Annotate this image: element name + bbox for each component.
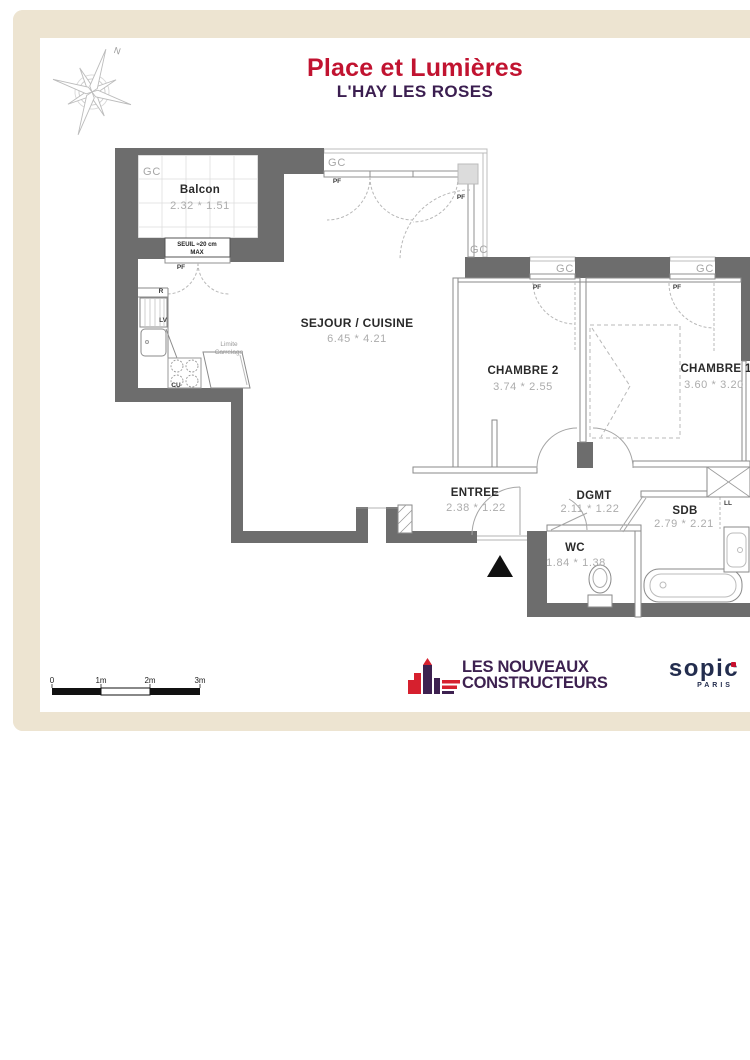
- limite-carrelage-line2: Carrelage: [215, 349, 244, 356]
- sopic-red-dot: [731, 662, 736, 667]
- lnc-logo-text: LES NOUVEAUX CONSTRUCTEURS: [462, 659, 608, 691]
- limite-carrelage-line1: Limite: [220, 341, 238, 348]
- room-dims-wc: 1.84 * 1.38: [546, 557, 606, 569]
- sopic-logo-text: sopic: [664, 657, 744, 681]
- scale-bar: 0 1m 2m 3m: [50, 676, 206, 695]
- pf-label-cuisine: PF: [177, 264, 185, 271]
- room-label-wc: WC: [565, 542, 585, 554]
- fridge-label: R: [159, 288, 164, 295]
- scale-label-1m: 1m: [95, 676, 106, 685]
- compass-rose-icon: N: [39, 30, 147, 148]
- pf-label-chambre2: PF: [533, 284, 541, 291]
- kitchen-fixtures: R LV CU Limite Carrelage: [138, 288, 250, 389]
- seuil-text-line2: MAX: [190, 250, 203, 256]
- pf-label-sejour-right: PF: [457, 194, 465, 201]
- scale-label-3m: 3m: [194, 676, 205, 685]
- compass-north-label: N: [113, 45, 122, 57]
- room-label-chambre2: CHAMBRE 2: [487, 365, 558, 377]
- seuil-text-line1: SEUIL ≈20 cm: [177, 242, 217, 248]
- guard-rails: [324, 149, 715, 261]
- room-label-entree: ENTREE: [451, 487, 499, 499]
- washer-label: LL: [724, 500, 732, 507]
- pf-label-sejour-top: PF: [333, 178, 341, 185]
- dishwasher-label: LV: [159, 317, 167, 324]
- room-label-balcon: Balcon: [180, 184, 220, 196]
- floor-plan-drawing: N: [0, 0, 750, 1060]
- room-dims-balcon: 2.32 * 1.51: [170, 200, 230, 212]
- pf-label-chambre1: PF: [673, 284, 681, 291]
- room-dims-sejour: 6.45 * 4.21: [327, 333, 387, 345]
- cooktop-label: CU: [171, 382, 181, 389]
- scale-label-0: 0: [50, 676, 55, 685]
- entrance-arrow: [487, 555, 513, 577]
- room-label-sdb: SDB: [672, 505, 697, 517]
- gc-label-sejour-right: GC: [470, 244, 488, 256]
- sopic-logo: sopic PARIS: [664, 657, 744, 689]
- room-label-sejour: SEJOUR / CUISINE: [301, 316, 414, 330]
- floor-plan-page: Place et Lumières L'HAY LES ROSES N: [0, 0, 750, 1060]
- bathroom-fixtures: LL: [588, 467, 750, 607]
- room-dims-chambre1: 3.60 * 3.20: [684, 379, 744, 391]
- gc-label-chambre1: GC: [696, 263, 714, 275]
- room-dims-dgmt: 2.11 * 1.22: [561, 503, 620, 515]
- gc-label-chambre2: GC: [556, 263, 574, 275]
- bed-outline: [590, 325, 680, 438]
- lnc-line1: LES NOUVEAUX: [462, 659, 608, 675]
- gc-label-balcon: GC: [143, 166, 161, 178]
- seuil-note: SEUIL ≈20 cm MAX: [165, 238, 230, 257]
- sopic-city-text: PARIS: [664, 682, 744, 689]
- room-dims-entree: 2.38 * 1.22: [446, 502, 506, 514]
- room-label-dgmt: DGMT: [576, 490, 611, 502]
- gc-label-sejour-top: GC: [328, 157, 346, 169]
- room-label-chambre1: CHAMBRE 1: [680, 363, 750, 375]
- room-dims-chambre2: 3.74 * 2.55: [493, 381, 553, 393]
- room-dims-sdb: 2.79 * 2.21: [654, 518, 714, 530]
- lnc-line2: CONSTRUCTEURS: [462, 675, 608, 691]
- scale-label-2m: 2m: [144, 676, 155, 685]
